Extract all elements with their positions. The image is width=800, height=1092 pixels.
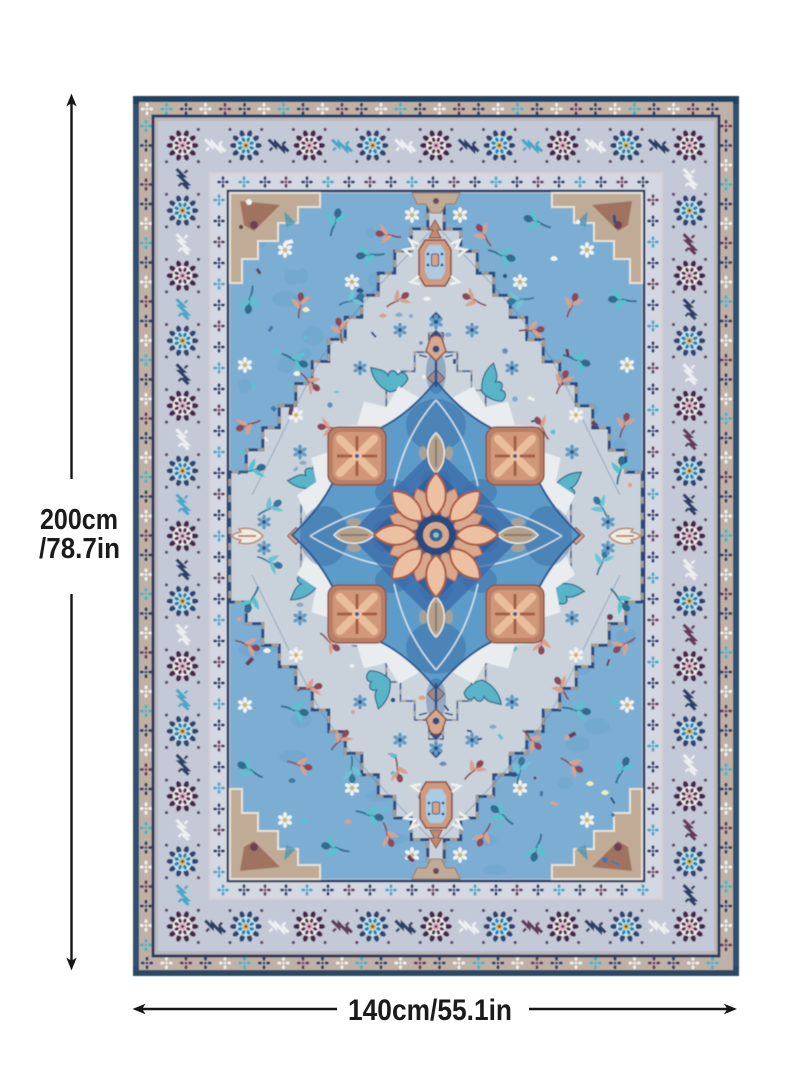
svg-text:200cm: 200cm (40, 504, 118, 536)
svg-text:140cm/55.1in: 140cm/55.1in (348, 994, 512, 1027)
svg-text:/78.7in: /78.7in (39, 533, 120, 565)
